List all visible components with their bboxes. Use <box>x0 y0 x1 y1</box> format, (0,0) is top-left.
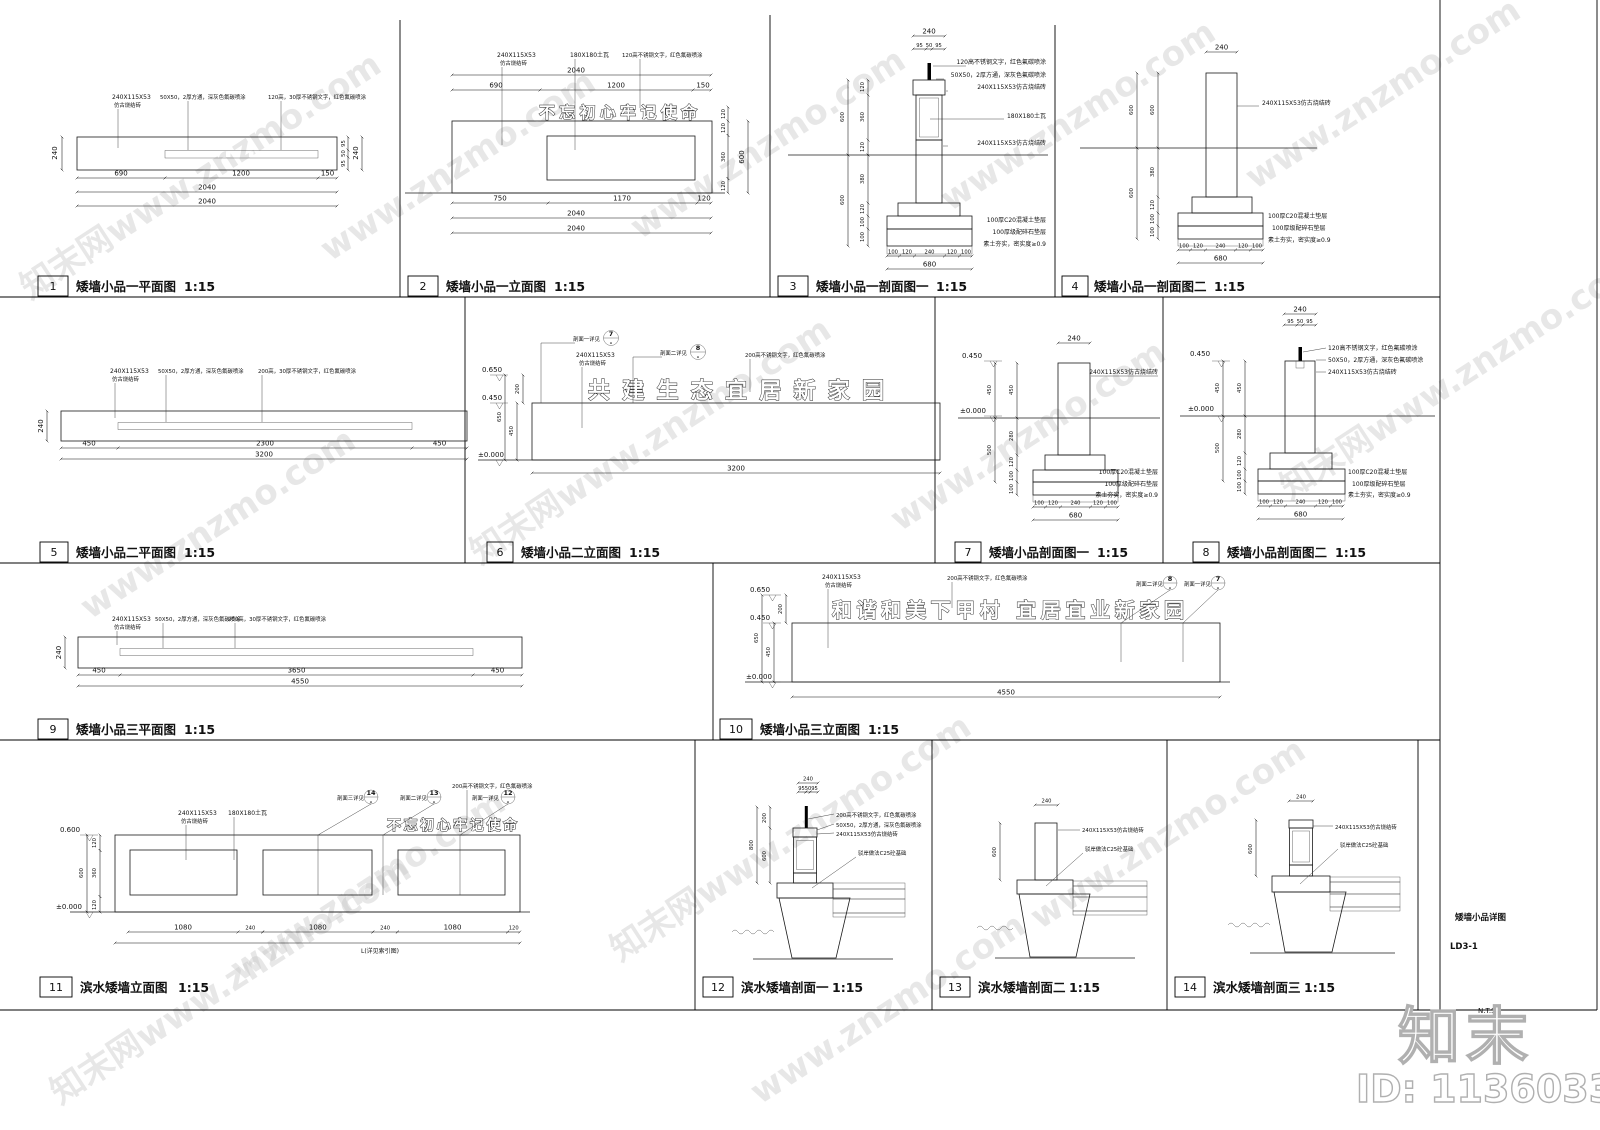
material-label: 100厚级配碎石垫层 <box>1352 480 1405 488</box>
dim-label: 120 <box>697 195 710 203</box>
dim-label: 120 <box>1093 501 1103 507</box>
panel-title: 矮墙小品三平面图 <box>75 722 176 737</box>
dim-label: 50 <box>926 43 933 49</box>
dim-label: 240 <box>1293 306 1306 314</box>
wall-slogan: 不忘初心牢记使命 <box>387 817 518 834</box>
dim-label: 680 <box>923 261 936 269</box>
dim-label: 100 <box>1150 227 1156 237</box>
panel-scale: 1:15 <box>184 545 215 560</box>
material-label: 200高不锈钢文字，红色氟碳喷涂 <box>836 811 917 819</box>
cap-course <box>913 80 945 95</box>
dim-label: 120 <box>1193 244 1203 250</box>
wall-plan <box>78 637 522 668</box>
dim-label: 450 <box>509 426 515 436</box>
dim-label: 240 <box>1216 244 1226 250</box>
callout-label: 剖面二详见 <box>1136 580 1164 588</box>
callout-label: 剖面一详见 <box>472 794 500 802</box>
concrete-bed <box>833 889 905 899</box>
dim-label: 120 <box>1318 500 1328 506</box>
concrete-coping <box>777 883 833 898</box>
dim-label: 240 <box>922 28 935 36</box>
dim-label: 600 <box>79 868 85 878</box>
dim-label: 500 <box>1215 443 1221 453</box>
panel-title: 滨水矮墙剖面三 <box>1213 980 1301 995</box>
panel-scale: 1:15 <box>178 980 209 995</box>
dim-label: 240 <box>1067 335 1080 343</box>
section-number: 14 <box>366 789 376 797</box>
dim-label: 120 <box>860 204 866 214</box>
panel-title: 矮墙小品二立面图 <box>520 545 621 560</box>
dim-label: 150 <box>696 82 709 90</box>
panel-title: 矮墙小品一剖面图一 <box>815 279 929 294</box>
panel-scale: 1:15 <box>554 279 585 294</box>
dim-label: 3650 <box>288 667 306 675</box>
dim-label: 600 <box>1129 188 1135 198</box>
cap-course <box>1289 820 1313 828</box>
dim-label: 100 <box>1332 500 1342 506</box>
panel-title: 滨水矮墙剖面二 <box>978 980 1066 995</box>
material-label: 仿古烧结砖 <box>825 581 853 589</box>
panel-title: 矮墙小品剖面图二 <box>1226 545 1328 560</box>
dim-label: 100 <box>1179 244 1189 250</box>
level-label: ±0.000 <box>1188 405 1214 413</box>
material-label: 240X115X53 <box>112 94 151 101</box>
dim-label: 240 <box>55 646 63 659</box>
dim-label: 100 <box>1252 244 1262 250</box>
dim-label: 2040 <box>567 67 585 75</box>
dim-label: 100 <box>860 217 866 227</box>
panel-title: 矮墙小品一平面图 <box>75 279 176 294</box>
dim-label: 240 <box>1296 500 1306 506</box>
sign-post <box>805 806 808 828</box>
stone-revetment <box>1274 892 1346 952</box>
material-label: 240X115X53仿古烧结砖 <box>1082 826 1144 834</box>
material-label: 200高不锈钢文字，红色氟碳喷涂 <box>947 574 1028 582</box>
dim-label: 95 <box>916 43 923 49</box>
dim-label: 450 <box>1237 383 1243 393</box>
gravel-bed <box>1178 226 1263 239</box>
dim-label: 240 <box>925 250 935 256</box>
post-socket <box>1296 361 1304 368</box>
dim-label: 240 <box>380 926 390 932</box>
section-sheet: - <box>697 353 700 361</box>
panel-9-wall-plan: 240X115X53 仿古烧结砖 50X50，2厚方通，深灰色氟碳喷涂 200高… <box>55 615 522 686</box>
watermark: www.znzmo.com <box>883 332 1173 540</box>
dim-label: 100 <box>1150 214 1156 224</box>
section-number: 8 <box>696 344 701 352</box>
dim-label: 240 <box>803 777 813 783</box>
dim-label: 1200 <box>607 82 625 90</box>
panel-number: 6 <box>497 546 504 559</box>
dim-label: 95 <box>1306 319 1313 325</box>
dim-label: 450 <box>433 440 446 448</box>
dim-label: 2040 <box>567 210 585 218</box>
material-label: 200高不锈钢文字，红色氟碳喷涂 <box>745 351 826 359</box>
material-label: 素土夯实，密实度≥0.9 <box>1095 491 1158 499</box>
watermark: 知末网www.znzmo.com <box>463 309 838 572</box>
panel-number: 9 <box>50 723 57 736</box>
cad-sheet: 知末网www.znzmo.com www.znzmo.com www.znzmo… <box>0 0 1600 1130</box>
material-label: 120高不锈钢文字，红色氟碳喷涂 <box>1328 344 1417 352</box>
section-number: 8 <box>1168 575 1173 583</box>
panel-scale: 1:15 <box>1214 279 1245 294</box>
panel-scale: 1:15 <box>1097 545 1128 560</box>
material-label: 240X115X53 <box>178 810 217 817</box>
dim-label: 2300 <box>256 440 274 448</box>
material-label: 240X115X53 <box>112 616 151 623</box>
panel-number: 14 <box>1183 981 1197 994</box>
dim-label: 120 <box>860 142 866 152</box>
material-label: 100厚C20混凝土垫层 <box>1268 212 1327 220</box>
concrete-bed <box>887 216 972 229</box>
material-label: 200高不锈钢文字，红色氟碳喷涂 <box>452 782 533 790</box>
base-course <box>794 873 817 883</box>
watermark: www.znzmo.com <box>73 420 363 628</box>
material-label: 仿古烧结砖 <box>112 375 140 383</box>
dim-label: 450 <box>82 440 95 448</box>
dim-label: 150 <box>321 170 334 178</box>
material-label: 100厚C20混凝土垫层 <box>1099 468 1158 476</box>
level-label: ±0.000 <box>478 451 504 459</box>
material-label: 240X115X53 <box>497 52 536 59</box>
water-line <box>732 930 774 934</box>
material-label: 素土夯实，密实度≥0.9 <box>1268 236 1331 244</box>
panel-number: 12 <box>711 981 725 994</box>
dim-label: 690 <box>489 82 502 90</box>
dim-label: 1200 <box>232 170 250 178</box>
level-label: 0.450 <box>962 352 982 360</box>
material-label: 240X115X53仿古烧结砖 <box>1335 823 1397 831</box>
wall-elevation <box>532 403 940 460</box>
panel-title: 滨水矮墙剖面一 <box>741 980 829 995</box>
panel-scale: 1:15 <box>184 279 215 294</box>
panel-number: 2 <box>420 280 427 293</box>
dim-label: 3200 <box>255 451 273 459</box>
dim-label: 600 <box>762 851 768 861</box>
dim-label: 120 <box>721 109 727 119</box>
material-label: 驳岸做法C25砼基础 <box>1340 841 1388 849</box>
material-label: 100厚级配碎石垫层 <box>1272 224 1325 232</box>
material-label: 仿古烧结砖 <box>579 359 607 367</box>
dim-label: 240 <box>352 146 360 159</box>
wall-slogan: 不忘初心牢记使命 <box>539 103 698 122</box>
dim-label: 200 <box>762 813 768 823</box>
image-id-watermark: ID: 1136033404 <box>1356 1067 1600 1111</box>
level-label: ±0.000 <box>56 903 82 911</box>
dim-label: 800 <box>749 840 755 850</box>
dim-label: 120 <box>860 82 866 92</box>
dim-label: 240 <box>1215 44 1228 52</box>
panel-scale: 1:15 <box>629 545 660 560</box>
wall-slogan: 共建生态宜居新家园 <box>588 378 884 404</box>
panel-number: 13 <box>948 981 962 994</box>
dim-label: 450 <box>1215 383 1221 393</box>
panel-scale: 1:15 <box>184 722 215 737</box>
material-label: 240X115X53仿古烧结砖 <box>977 83 1046 91</box>
dim-label: 600 <box>840 112 846 122</box>
tile-screen <box>547 136 695 180</box>
dim-label: 2040 <box>198 198 216 206</box>
material-label: 100厚C20混凝土垫层 <box>987 216 1046 224</box>
callout-label: 剖面一详见 <box>573 335 601 343</box>
dim-label: 690 <box>114 170 127 178</box>
panel-scale: 1:15 <box>1069 980 1100 995</box>
footing <box>1045 455 1105 470</box>
panel-number: 3 <box>790 280 797 293</box>
material-label: 仿古烧结砖 <box>500 59 528 67</box>
dim-label: 200 <box>515 384 521 394</box>
dim-label: 360 <box>92 868 98 878</box>
length-note: L(详见索引图) <box>361 947 399 955</box>
stone-revetment <box>779 898 850 958</box>
wall-elevation <box>792 623 1220 682</box>
dim-label: 100 <box>1237 482 1243 492</box>
dim-label: 120 <box>1048 501 1058 507</box>
dim-label: 100 <box>888 250 898 256</box>
znzmo-logo: 知末 <box>1398 1000 1534 1073</box>
callout-label: 剖面二详见 <box>400 794 428 802</box>
dim-label: 120 <box>1009 457 1015 467</box>
subsoil <box>833 913 905 917</box>
dim-label: 100 <box>1259 500 1269 506</box>
material-label: 仿古烧结砖 <box>114 623 142 631</box>
dim-label: 1080 <box>174 924 192 932</box>
dim-label: 450 <box>1009 385 1015 395</box>
dim-label: 100 <box>961 250 971 256</box>
level-label: 0.650 <box>482 366 502 374</box>
dim-label: 380 <box>1150 167 1156 177</box>
panel-5-wall-plan: 240X115X53 仿古烧结砖 50X50，2厚方通，深灰色氟碳喷涂 200高… <box>37 367 467 459</box>
dim-label: 600 <box>1129 105 1135 115</box>
material-label: 100厚级配碎石垫层 <box>993 228 1046 236</box>
panel-title: 矮墙小品一剖面图二 <box>1093 279 1207 294</box>
material-label: 240X115X53仿古烧结砖 <box>1262 99 1331 107</box>
dim-label: 120 <box>92 900 98 910</box>
material-label: 200高，30厚不锈钢文字，红色氟碳喷涂 <box>228 615 327 623</box>
panel-6-wall-elevation: 共建生态宜居新家园 剖面一详见 7 - 剖面二详见 8 - 240X115X53… <box>478 330 940 473</box>
material-label: 素土夯实，密实度≥0.9 <box>983 240 1046 248</box>
material-label: 180X180土瓦 <box>228 809 267 817</box>
dim-label: 4550 <box>997 689 1015 697</box>
base-course <box>1290 865 1313 876</box>
dim-label: 1080 <box>444 924 462 932</box>
concrete-coping <box>1272 876 1330 892</box>
dim-label: 450 <box>987 385 993 395</box>
dim-label: 95 <box>341 140 347 147</box>
panel-number: 5 <box>51 546 58 559</box>
panel-scale: 1:15 <box>832 980 863 995</box>
subsoil <box>1330 907 1400 911</box>
level-label: 0.450 <box>482 394 502 402</box>
gravel-bed <box>887 229 972 246</box>
material-label: 180X180土瓦 <box>1007 112 1046 120</box>
tile-zone <box>1290 828 1313 865</box>
section-number: 12 <box>503 789 512 797</box>
dim-label: 120 <box>1273 500 1283 506</box>
dim-label: 240 <box>37 419 45 432</box>
level-label: 0.450 <box>750 614 770 622</box>
section-number: 7 <box>1216 575 1221 583</box>
wall-slogan: 和谐和美下甲村 宜居宜业新家园 <box>832 598 1184 622</box>
dim-label: 650 <box>497 412 503 422</box>
dim-label: 100 <box>860 232 866 242</box>
dim-label: 100 <box>1237 470 1243 480</box>
section-sheet: - <box>370 798 373 806</box>
material-label: 驳岸做法C25砼基础 <box>858 849 906 857</box>
panel-10-wall-elevation: 和谐和美下甲村 宜居宜业新家园 240X115X53 仿古烧结砖 200高不锈钢… <box>745 574 1230 697</box>
paving <box>1330 877 1400 882</box>
level-label: 0.450 <box>1190 350 1210 358</box>
panel-number: 4 <box>1072 280 1079 293</box>
section-sheet: - <box>610 339 613 347</box>
panel-title: 矮墙小品三立面图 <box>759 722 860 737</box>
material-label: 仿古烧结砖 <box>181 817 209 825</box>
watermark: www.znzmo.com <box>623 40 913 248</box>
wall-stem <box>1206 73 1237 197</box>
band-gaps <box>136 649 452 654</box>
level-label: ±0.000 <box>746 673 772 681</box>
dim-label: 3200 <box>727 465 745 473</box>
dim-label: 1080 <box>309 924 327 932</box>
level-label: ±0.000 <box>960 407 986 415</box>
dim-label: 1170 <box>613 195 631 203</box>
material-label: 50X50，2厚方通，深灰色氟碳喷涂 <box>1328 356 1423 364</box>
dim-label: 120 <box>947 250 957 256</box>
dim-label: 680 <box>1214 255 1227 263</box>
sign-band <box>120 649 473 656</box>
dim-label: 280 <box>1237 429 1243 439</box>
material-label: 100厚级配碎石垫层 <box>1105 480 1158 488</box>
sign-post <box>928 63 932 80</box>
panel-14-waterfront-section-3: 240 600 240X115X53仿古烧结砖 驳岸做法C25砼基础 <box>1228 795 1400 954</box>
panel-scale: 1:15 <box>1335 545 1366 560</box>
material-label: 100厚C20混凝土垫层 <box>1348 468 1407 476</box>
dim-label: 240 <box>51 146 59 159</box>
panel-number: 1 <box>50 280 57 293</box>
dim-label: 360 <box>721 152 727 162</box>
material-label: 120高，30厚不锈钢文字，红色氟碳喷涂 <box>268 93 367 101</box>
watermark: 知末网www.znzmo.com <box>1273 244 1600 507</box>
panel-scale: 1:15 <box>868 722 899 737</box>
dim-label: 2040 <box>567 225 585 233</box>
dim-label: 120 <box>721 123 727 133</box>
sign-post <box>1299 347 1303 361</box>
dim-label: 120 <box>509 926 519 932</box>
material-label: 240X115X53仿古烧结砖 <box>1328 368 1397 376</box>
dim-label: 120 <box>902 250 912 256</box>
section-number: 13 <box>429 789 438 797</box>
watermark: 知末网www.znzmo.com <box>603 706 978 969</box>
material-label: 50X50，2厚方通，深灰色氟碳喷涂 <box>158 367 244 375</box>
dim-label: 120 <box>1237 456 1243 466</box>
material-label: 180X180土瓦 <box>570 51 609 59</box>
dim-label: 600 <box>738 150 746 163</box>
sheet-title: 矮墙小品详图 <box>1454 912 1506 923</box>
material-label: 50X50，2厚方通，深灰色氟碳喷涂 <box>951 71 1046 79</box>
dim-label: 50 <box>341 150 347 157</box>
material-label: 240X115X53 <box>110 368 149 375</box>
dim-label: 500 <box>987 445 993 455</box>
dim-label: 120 <box>1150 200 1156 210</box>
material-label: 240X115X53仿古烧结砖 <box>836 830 898 838</box>
dim-label: 120 <box>721 181 727 191</box>
panel-number: 8 <box>1203 546 1210 559</box>
dim-label: 100 <box>1034 501 1044 507</box>
watermark: www.znzmo.com <box>1023 730 1313 938</box>
material-label: 120高不锈钢文字，红色氟碳喷涂 <box>957 58 1046 66</box>
gravel-bed <box>1330 894 1400 907</box>
dim-label: 450 <box>491 667 504 675</box>
material-label: 240X115X53 <box>576 352 615 359</box>
dim-label: 2040 <box>198 184 216 192</box>
dim-label: 100 <box>1009 484 1015 494</box>
footing <box>1192 197 1252 213</box>
panel-title: 滨水矮墙立面图 <box>80 980 168 995</box>
dim-label: 600 <box>840 195 846 205</box>
dim-label: 240 <box>1296 795 1306 801</box>
material-label: 50X50，2厚方通，深灰色氟碳喷涂 <box>836 821 922 829</box>
band-gaps <box>135 423 389 428</box>
material-label: 驳岸做法C25砼基础 <box>1085 845 1133 853</box>
dim-label: 450 <box>92 667 105 675</box>
dim-label: 650 <box>754 633 760 643</box>
wall-stem <box>1035 823 1057 880</box>
panel-title: 矮墙小品一立面图 <box>445 279 546 294</box>
paving <box>833 883 905 889</box>
dim-label: 4550 <box>291 678 309 686</box>
level-label: 0.650 <box>750 586 770 594</box>
panel-scale: 1:15 <box>1304 980 1335 995</box>
dim-label: 600 <box>1150 105 1156 115</box>
callout-label: 剖面二详见 <box>660 349 688 357</box>
dim-label: 95 <box>1287 319 1294 325</box>
panel-scale: 1:15 <box>936 279 967 294</box>
dim-label: 380 <box>860 174 866 184</box>
watermark: www.znzmo.com <box>743 905 1033 1113</box>
section-number: 7 <box>609 330 614 338</box>
dim-label: 280 <box>1009 431 1015 441</box>
panel-title: 矮墙小品二平面图 <box>75 545 176 560</box>
drawing-canvas: 知末网www.znzmo.com www.znzmo.com www.znzmo… <box>0 0 1600 1130</box>
dim-label: 100 <box>1107 501 1117 507</box>
material-label: 120高不锈钢文字，红色氟碳喷涂 <box>622 51 703 59</box>
watermark: www.znzmo.com <box>1238 0 1528 198</box>
material-label: 200高，30厚不锈钢文字，红色氟碳喷涂 <box>258 367 357 375</box>
gravel-bed <box>833 899 905 913</box>
wall-stem <box>1285 361 1315 453</box>
tile-screen <box>130 850 237 895</box>
concrete-bed <box>1178 213 1263 226</box>
dim-label: 680 <box>1069 512 1082 520</box>
dim-label: 600 <box>1248 844 1254 854</box>
tile-zone <box>916 95 942 140</box>
level-label: 0.600 <box>60 826 80 834</box>
panel-number: 11 <box>49 981 63 994</box>
watermark: www.znzmo.com <box>933 12 1223 220</box>
material-label: 仿古烧结砖 <box>114 101 142 109</box>
dim-label: 95 <box>935 43 942 49</box>
callout-label: 剖面三详见 <box>337 794 365 802</box>
site-logo-watermark: 知末 ID: 1136033404 <box>1356 1000 1600 1111</box>
dim-label: 120 <box>1238 244 1248 250</box>
dim-label: 200 <box>778 604 784 614</box>
material-label: 240X115X53仿古烧结砖 <box>977 139 1046 147</box>
panel-title: 矮墙小品剖面图一 <box>988 545 1090 560</box>
dim-label: 680 <box>1294 511 1307 519</box>
dim-label: 240 <box>1042 799 1052 805</box>
sheet-number: LD3-1 <box>1450 942 1478 952</box>
dim-label: 95 <box>811 786 818 792</box>
